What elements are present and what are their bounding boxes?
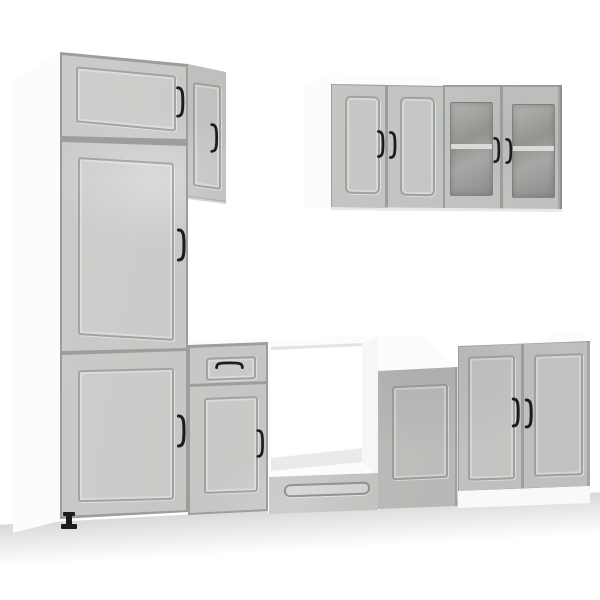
wall-cabinet-solid-left-door-panel xyxy=(345,96,380,195)
tall-cabinet-top-door-handle xyxy=(175,85,185,119)
wall-cabinet-solid-right-door-panel xyxy=(400,97,435,197)
wall-cabinet-glass-right-handle xyxy=(504,137,513,165)
sink-cabinet-left-handle xyxy=(511,396,520,429)
drawer-handle xyxy=(214,360,245,370)
kitchen-set-product-photo xyxy=(0,0,600,600)
wall-cabinet-solid-right-handle xyxy=(388,130,397,160)
tall-cabinet-bottom-door-panel xyxy=(78,368,174,503)
adjustable-foot-base xyxy=(61,524,77,529)
wall-cabinet-glass-left-handle xyxy=(492,136,501,164)
slim-upper-cabinet-handle xyxy=(209,122,219,154)
tall-cabinet-middle-door-handle xyxy=(176,227,186,263)
tall-cabinet-top-door-panel xyxy=(76,66,176,131)
tall-cabinet-bottom-door-handle xyxy=(176,413,186,449)
sink-cabinet-left-door-panel xyxy=(468,355,515,481)
sink-cabinet-right-handle xyxy=(524,397,533,430)
base-cabinet-plain-door-panel xyxy=(392,384,448,480)
base-cabinet-drawer-door-handle xyxy=(255,428,265,459)
tall-cabinet-middle-door-panel xyxy=(78,157,174,341)
glass-pane-right xyxy=(512,104,555,198)
base-cabinet-drawer-door-panel xyxy=(204,396,258,494)
sink-cabinet-right-door-panel xyxy=(534,353,583,477)
wall-cabinet-solid-left-handle xyxy=(376,129,385,159)
glass-pane-left xyxy=(450,102,493,196)
glass-shelf-line xyxy=(513,146,554,151)
glass-shelf-line xyxy=(451,144,492,149)
